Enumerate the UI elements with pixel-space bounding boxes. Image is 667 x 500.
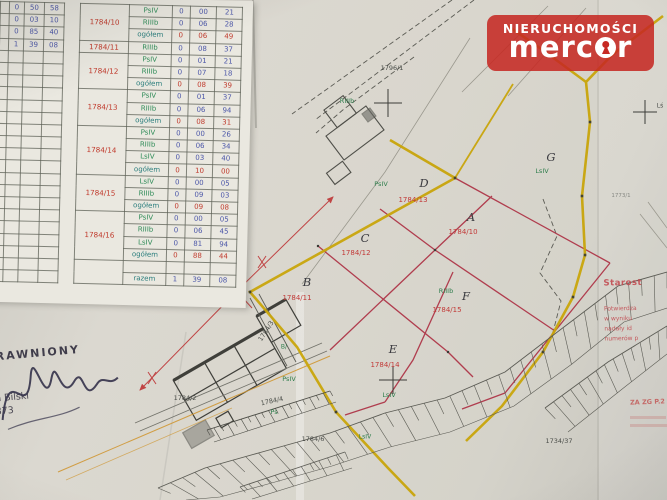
- map-label: PsIV: [282, 375, 296, 383]
- boundary-point-markers: [249, 121, 592, 414]
- stamp-line: numerów p: [604, 333, 666, 344]
- signature-scribble: [0, 321, 158, 442]
- mercor-logo: NIERUCHOMOŚCI mercr: [487, 15, 654, 71]
- faint-stamp-bars: [630, 416, 667, 427]
- parcel-number-cell: 1784/16: [74, 210, 124, 260]
- map-label: 1734/37: [545, 437, 572, 445]
- map-label: 1784/2: [174, 394, 197, 402]
- path-lines: [135, 294, 327, 431]
- map-label: PsIV: [374, 180, 388, 188]
- map-label: B: [303, 275, 311, 289]
- yellow-boundary-line: [250, 16, 663, 496]
- keyhole-o-icon: [595, 37, 616, 58]
- parcel-boundary-lines: [318, 178, 610, 415]
- map-label: A: [467, 210, 475, 224]
- map-label: LsIV: [382, 391, 395, 399]
- photographed-cadastral-map-document: 1784/13D1784/10A1784/12C1784/11B1784/15F…: [0, 0, 667, 500]
- parcel-number-cell: 1784/15: [76, 174, 126, 212]
- map-label: LsIV: [535, 167, 548, 175]
- map-label: 1784/4: [260, 395, 284, 408]
- slope-hatching: [240, 452, 352, 499]
- map-label: G: [546, 150, 555, 164]
- map-label: D: [419, 176, 428, 190]
- parcel-number-cell: 1784/10: [80, 3, 130, 41]
- map-label: B/: [281, 344, 287, 351]
- slope-hatching: [207, 391, 336, 442]
- buildings-north: [295, 87, 394, 184]
- table-row: [0, 269, 58, 283]
- map-label: E: [389, 342, 397, 356]
- map-label: 1796/1: [381, 64, 404, 72]
- map-label: 1784/11: [282, 294, 311, 302]
- map-label: 1784/15: [432, 306, 461, 314]
- map-label: 1784/3: [256, 319, 275, 343]
- area-register-sheet: 05058003100854013908 1784/10PsIV00021RII…: [0, 0, 253, 308]
- map-label: 1784/10: [448, 228, 477, 236]
- map-label: 1784/13: [398, 196, 427, 204]
- parcel-area-table: 1784/10PsIV00021RIIIb00628ogółem00649178…: [73, 3, 243, 288]
- map-label: 1773/1: [611, 193, 630, 199]
- grid-cross-icon: [374, 89, 657, 394]
- logo-word-end: r: [617, 30, 632, 64]
- map-label: 1784/14: [370, 361, 399, 369]
- map-label: C: [361, 231, 370, 245]
- map-label: RIIIb: [439, 287, 453, 295]
- logo-word-start: merc: [509, 30, 594, 64]
- parcel-number-cell: 1784/11: [79, 40, 128, 53]
- map-label: 1784/6: [302, 435, 325, 443]
- map-label: F: [462, 289, 470, 303]
- map-label: 1784/12: [341, 249, 370, 257]
- map-label: Ps: [270, 408, 277, 416]
- logo-text-brand: mercr: [487, 33, 654, 61]
- left-area-table: 05058003100854013908: [0, 1, 65, 284]
- official-stamp-text: StarostPotwierdzaw wynikunadały idnumeró…: [603, 277, 666, 344]
- corner-stamp-text: ZA ZG P.2: [630, 397, 665, 406]
- buildings-south: [151, 299, 327, 448]
- parcel-number-cell: 1784/13: [78, 89, 128, 127]
- map-label: LsIV: [359, 434, 371, 441]
- map-label: Lś: [657, 103, 663, 110]
- parcel-number-cell: 1784/12: [78, 52, 128, 90]
- parcel-number-cell: 1784/14: [76, 125, 126, 175]
- map-label: RIIIb: [340, 97, 354, 105]
- stamp-line: Starost: [603, 277, 665, 288]
